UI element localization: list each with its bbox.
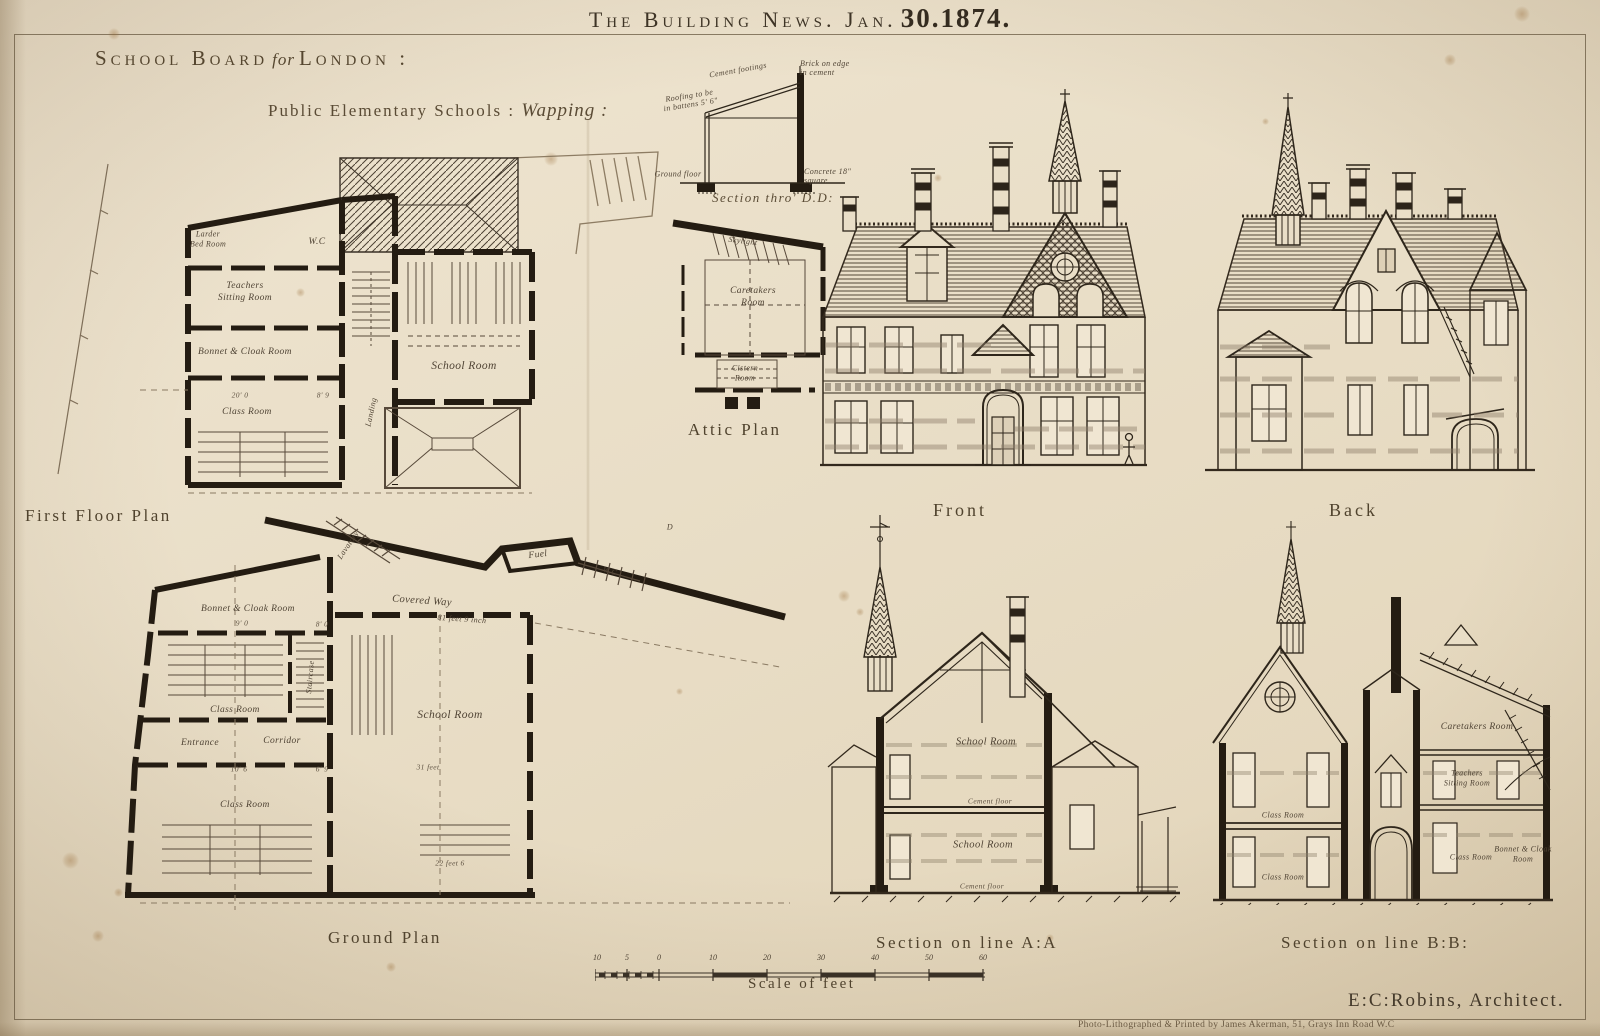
header-place: Wapping : — [521, 100, 608, 121]
header-schools: Public Elementary Schools : — [268, 101, 515, 120]
dimension-label: 20' 0 — [232, 391, 249, 400]
class-benches-lower — [162, 825, 312, 875]
scale-tick: 10 — [709, 953, 717, 962]
fleche-spire — [1272, 93, 1304, 245]
room-label: Caretakers Room — [1441, 722, 1513, 732]
first-floor-plan-drawing — [40, 150, 660, 495]
header-board: School Board — [95, 46, 268, 70]
room-label: School Room — [431, 360, 496, 372]
dimension-label: 31 feet — [416, 763, 439, 772]
room-label: Sitting Room — [218, 293, 272, 303]
header-line2: Public Elementary Schools : Wapping : — [268, 100, 608, 122]
section-bb-caption: Section on line B:B: — [1281, 933, 1469, 953]
chimneys — [840, 143, 1121, 231]
classroom-benches — [198, 432, 328, 477]
room-label: Bed Room — [190, 240, 226, 249]
main-section — [870, 633, 1115, 894]
center-tower — [1363, 597, 1420, 900]
section-aa-caption: Section on line A:A — [876, 933, 1058, 953]
ground-plan: Lavatory Fuel W.C D Covered Way 81 feet … — [30, 505, 800, 915]
dimension-label: 9' 0 — [236, 619, 249, 628]
center-lower-windows — [1348, 385, 1428, 435]
room-label: Room — [1513, 855, 1533, 864]
scale-tick: 30 — [817, 953, 825, 962]
architect-credit: E:C:Robins, Architect. — [1348, 990, 1565, 1012]
spire — [1277, 521, 1305, 653]
room-label: W.C — [309, 237, 326, 247]
room-label: Cistern — [732, 364, 758, 373]
stair-first-floor — [352, 272, 390, 346]
printer-credit: Photo-Lithographed & Printed by James Ak… — [1078, 1020, 1395, 1030]
lithograph-page: { "masthead": { "title": "The Building N… — [0, 0, 1600, 1036]
front-elevation-drawing — [815, 85, 1150, 485]
room-label: Room — [735, 374, 755, 383]
masthead-date: 30.1874. — [901, 3, 1012, 33]
header-line1: School Board for London : — [95, 46, 409, 71]
section-marker: D — [667, 523, 673, 532]
dimension-label: 22 feet 6 — [435, 859, 464, 868]
scale-tick: 10 — [593, 953, 601, 962]
room-label: Bonnet & Cloak Room — [201, 604, 295, 614]
room-label: Entrance — [181, 738, 219, 748]
annotation: Ground floor — [655, 170, 702, 179]
room-label: Sitting Room — [1444, 779, 1490, 788]
room-label: Class Room — [220, 800, 270, 810]
room-label: School Room — [417, 709, 482, 721]
scale-tick: 5 — [625, 953, 629, 962]
class-benches-upper — [168, 645, 283, 697]
room-label: Room — [741, 298, 765, 308]
first-floor-plan: Larder Bed Room W.C Teachers Sitting Roo… — [40, 150, 660, 495]
school-benches — [352, 635, 510, 855]
section-bb: Caretakers Room Teachers Sitting Room Cl… — [1205, 505, 1560, 905]
ground-line — [830, 893, 1180, 902]
scale-tick: 50 — [925, 953, 933, 962]
site-boundary — [58, 164, 108, 474]
attic-plan-caption: Attic Plan — [688, 420, 781, 440]
ground-plan-caption: Ground Plan — [328, 928, 442, 948]
room-label: Larder — [196, 230, 220, 239]
annotation: Cement floor — [968, 797, 1012, 806]
chimney-shaft — [1006, 597, 1029, 697]
hatched-roof-plan — [340, 158, 518, 252]
fleche — [864, 515, 896, 691]
dimension-label: 10' 6 — [231, 765, 248, 774]
masthead: The Building News. Jan. 30.1874. — [0, 3, 1600, 34]
left-outbuilding — [828, 745, 876, 893]
header-for: for — [272, 50, 295, 69]
adjacent-roof-outline — [510, 152, 658, 254]
interior-walls — [138, 557, 530, 895]
back-elevation-drawing — [1200, 85, 1540, 485]
scale-tick: 0 — [657, 953, 661, 962]
schoolroom-benches — [408, 262, 520, 346]
dimension-label: 8' 9 — [317, 391, 330, 400]
front-elevation — [815, 85, 1150, 485]
annotation: Cement floor — [960, 882, 1004, 891]
room-label: Class Room — [222, 407, 272, 417]
room-label: Corridor — [263, 736, 301, 746]
room-label: Teachers — [1451, 769, 1483, 778]
header-city: London : — [299, 46, 409, 70]
ground-line — [1213, 900, 1553, 905]
scale-tick: 40 — [871, 953, 879, 962]
annotation: Brick on edge in cement — [800, 59, 856, 77]
section-aa: School Room Cement floor School Room Cem… — [820, 505, 1190, 905]
room-label: Bonnet & Cloak — [1494, 845, 1552, 854]
masthead-title: The Building News. Jan. — [589, 7, 897, 32]
room-label: Class Room — [1262, 873, 1304, 882]
scale-tick: 20 — [763, 953, 771, 962]
room-label: Class Room — [1450, 853, 1492, 862]
dimension-label: 6' 9 — [316, 765, 329, 774]
room-label: Bonnet & Cloak Room — [198, 347, 292, 357]
hip-roof-annex — [385, 408, 520, 488]
room-label: School Room — [953, 840, 1013, 851]
room-label: Class Room — [210, 705, 260, 715]
ground-plan-drawing — [30, 505, 800, 915]
room-label: Teachers — [226, 281, 263, 291]
attic-plan: Skylight Caretakers Room Cistern Room — [655, 205, 840, 420]
right-annex — [1052, 741, 1178, 893]
dimension-label: 8' 0 — [316, 620, 329, 629]
scale-tick: 60 — [979, 953, 987, 962]
room-label: School Room — [956, 737, 1016, 748]
back-elevation — [1200, 85, 1540, 485]
room-label: Class Room — [1262, 811, 1304, 820]
room-label: Caretakers — [730, 286, 776, 296]
scale-caption: Scale of feet — [748, 976, 855, 993]
fleche-spire — [1049, 89, 1081, 213]
